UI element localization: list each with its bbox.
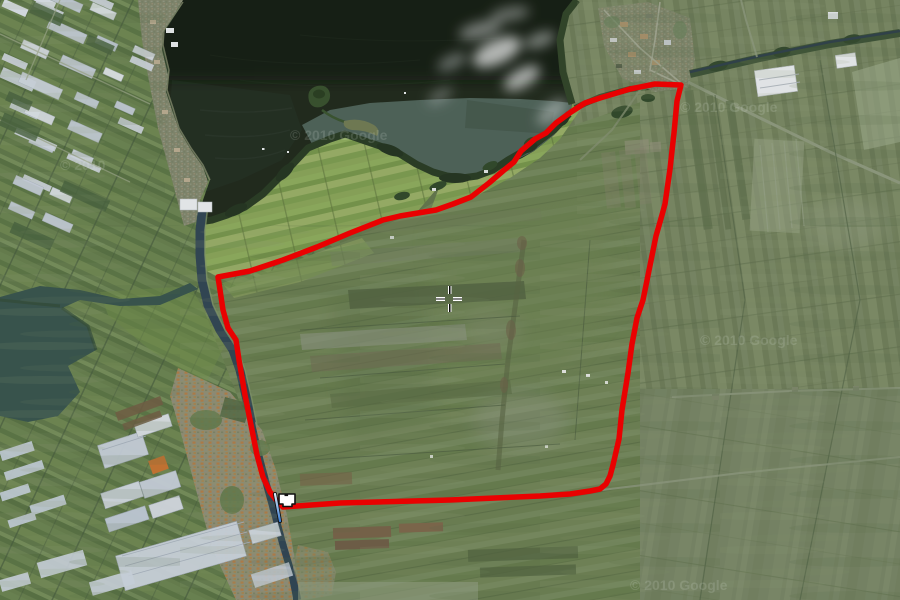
svg-text:© 2010 Google: © 2010 Google xyxy=(680,99,778,115)
svg-text:© 2010 Google: © 2010 Google xyxy=(630,577,728,593)
svg-text:© 2010 Google: © 2010 Google xyxy=(700,332,798,348)
svg-text:© 2010 Google: © 2010 Google xyxy=(290,127,388,143)
svg-text:© 2010: © 2010 xyxy=(60,157,106,173)
